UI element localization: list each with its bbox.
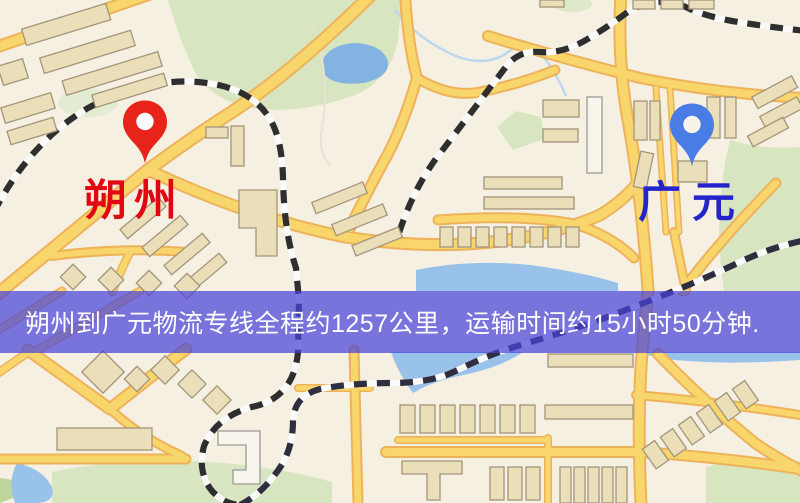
map-screenshot: 朔州 广元 朔州到广元物流专线全程约1257公里，运输时间约15小时50分钟.	[0, 0, 800, 503]
route-info-banner: 朔州到广元物流专线全程约1257公里，运输时间约15小时50分钟.	[0, 291, 800, 353]
destination-pin-icon[interactable]	[667, 102, 717, 169]
origin-pin-icon[interactable]	[120, 99, 170, 166]
destination-label: 广元	[638, 182, 746, 225]
map-background	[0, 0, 800, 503]
route-info-text: 朔州到广元物流专线全程约1257公里，运输时间约15小时50分钟.	[25, 304, 760, 340]
origin-label: 朔州	[84, 180, 184, 223]
